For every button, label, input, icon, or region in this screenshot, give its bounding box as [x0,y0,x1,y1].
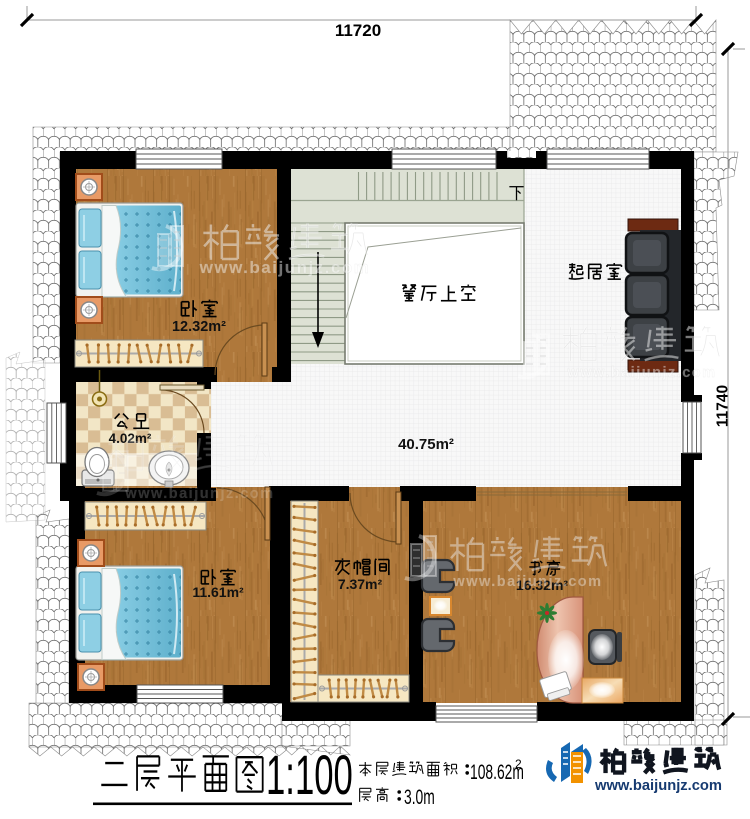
svg-text:2: 2 [515,757,522,771]
svg-text:3.0m: 3.0m [404,785,435,809]
svg-text:www.baijunjz.com: www.baijunjz.com [124,486,274,502]
svg-text:12.32m²: 12.32m² [172,319,226,335]
svg-text:11720: 11720 [335,21,381,40]
svg-text:7.37m²: 7.37m² [338,576,383,592]
svg-text:www.baijunjz.com: www.baijunjz.com [594,778,722,794]
svg-text:www.baijunjz.com: www.baijunjz.com [566,365,716,381]
svg-text:www.baijunjz.com: www.baijunjz.com [199,258,371,277]
svg-text:40.75m²: 40.75m² [398,436,454,453]
svg-text:11.61m²: 11.61m² [192,584,244,600]
svg-text:1:100: 1:100 [266,744,353,807]
svg-text:11740: 11740 [715,385,732,427]
svg-text:www.baijunjz.com: www.baijunjz.com [452,574,602,590]
